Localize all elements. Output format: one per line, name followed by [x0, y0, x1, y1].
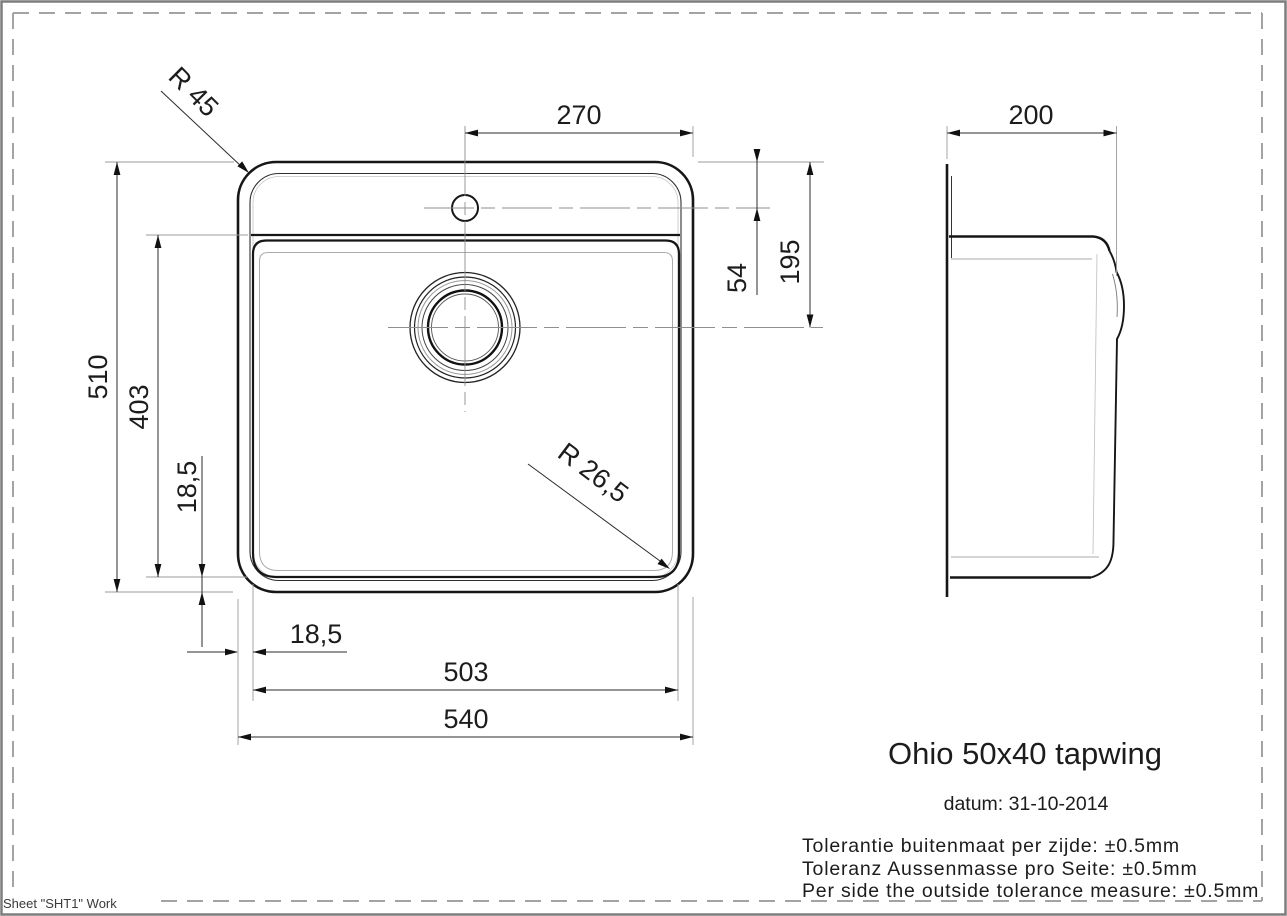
arrowhead: [754, 208, 761, 221]
arrowhead: [680, 734, 693, 741]
arrowhead: [225, 649, 238, 656]
drawing-date: datum: 31-10-2014: [944, 793, 1109, 815]
dim-18-5-vertical-label: 18,5: [172, 461, 202, 514]
tolerance-line-nl: Tolerantie buitenmaat per zijde: ±0.5mm: [802, 835, 1180, 857]
dim-54-label: 54: [722, 263, 752, 293]
dimension-top-to-drain-center: 195: [775, 162, 813, 328]
dim-510-label: 510: [83, 354, 113, 399]
arrowhead: [114, 579, 121, 592]
leader-bowl-corner-radius: R 26,5: [528, 437, 670, 569]
dim-403-label: 403: [124, 384, 154, 429]
sink-rim-ghost-line: [253, 177, 678, 578]
side-top-surface: [949, 237, 1110, 252]
page-border: [2, 2, 1286, 915]
arrowhead: [199, 564, 206, 577]
sink-outer-outline: [238, 162, 693, 592]
title-block: Ohio 50x40 tapwing datum: 31-10-2014 Tol…: [802, 736, 1259, 902]
drawing-title: Ohio 50x40 tapwing: [888, 736, 1162, 771]
dim-200-label: 200: [1008, 100, 1053, 130]
leader-outer-corner-radius: R 45: [161, 61, 249, 173]
side-bulge-inner-line: [1113, 274, 1118, 317]
arrowhead: [155, 235, 162, 248]
arrowhead: [754, 149, 761, 162]
dimension-bowl-width: 503: [253, 657, 678, 693]
arrowhead: [155, 564, 162, 577]
dim-503-label: 503: [443, 657, 488, 687]
dimension-bowl-height: 403: [124, 235, 248, 577]
tolerance-line-en: Per side the outside tolerance measure: …: [802, 880, 1259, 902]
tolerance-line-de: Toleranz Aussenmasse pro Seite: ±0.5mm: [802, 858, 1198, 880]
arrowhead: [807, 315, 814, 328]
dimension-bowl-left-inset: 18,5: [187, 619, 347, 655]
dimension-top-to-tap-center: 54: [722, 149, 760, 295]
front-view: 270 54 195 510: [83, 61, 824, 745]
page-edge: [2, 2, 1286, 915]
dimension-tap-to-right-edge: 270: [465, 100, 693, 157]
side-silhouette-line: [1093, 254, 1097, 554]
arrowhead: [807, 162, 814, 175]
dim-540-label: 540: [443, 704, 488, 734]
arrowhead: [665, 687, 678, 694]
arrowhead: [1104, 130, 1117, 137]
arrowhead: [253, 649, 266, 656]
arrowhead: [237, 161, 249, 173]
bowl-inner-wall-line: [260, 253, 673, 571]
arrowhead: [199, 592, 206, 605]
drawing-sheet: 270 54 195 510: [0, 0, 1287, 916]
side-view: 200: [947, 100, 1124, 597]
sheet-label: Sheet "SHT1" Work: [3, 896, 117, 911]
radius-r26-5-label: R 26,5: [552, 437, 634, 509]
arrowhead: [680, 130, 693, 137]
dim-270-label: 270: [556, 100, 601, 130]
radius-r45-label: R 45: [163, 61, 225, 123]
arrowhead: [947, 130, 960, 137]
arrowhead: [238, 734, 251, 741]
arrowhead: [114, 162, 121, 175]
dimension-outer-width: 540: [238, 704, 693, 740]
dimension-depth: 200: [947, 100, 1117, 276]
dimension-bowl-bottom-inset: 18,5: [172, 456, 205, 647]
arrowhead: [465, 130, 478, 137]
arrowhead: [253, 687, 266, 694]
technical-drawing-canvas: 270 54 195 510: [0, 0, 1287, 916]
dim-18-5-horizontal-label: 18,5: [290, 619, 343, 649]
dim-195-label: 195: [775, 239, 805, 284]
